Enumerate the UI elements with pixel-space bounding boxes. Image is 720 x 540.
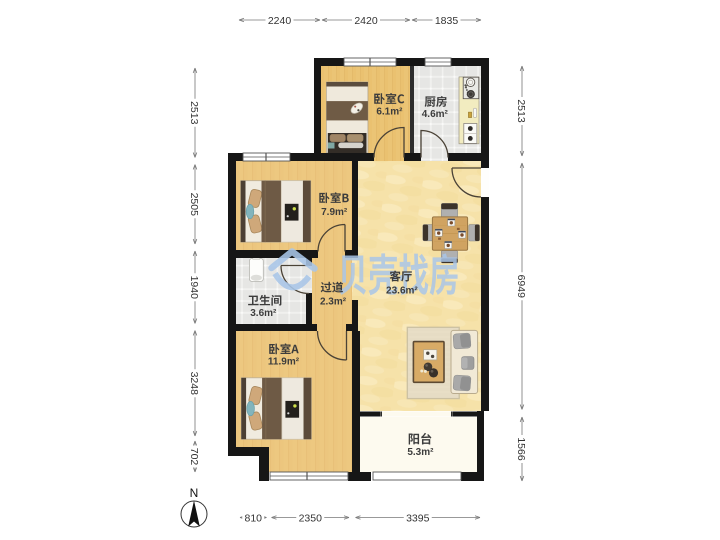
svg-text:N: N <box>190 486 199 500</box>
svg-text:1940: 1940 <box>188 276 200 300</box>
svg-text:2420: 2420 <box>354 15 378 27</box>
svg-text:2513: 2513 <box>515 99 527 123</box>
svg-text:7.9m²: 7.9m² <box>321 207 348 218</box>
svg-text:6.1m²: 6.1m² <box>376 107 403 118</box>
svg-text:23.6m²: 23.6m² <box>386 286 418 297</box>
svg-text:2505: 2505 <box>188 193 200 217</box>
svg-text:2240: 2240 <box>268 15 292 27</box>
svg-text:810: 810 <box>244 512 262 524</box>
svg-text:3.6m²: 3.6m² <box>250 308 277 319</box>
svg-text:2513: 2513 <box>188 101 200 125</box>
svg-text:6949: 6949 <box>515 275 527 299</box>
svg-text:1566: 1566 <box>515 437 527 461</box>
svg-text:2.3m²: 2.3m² <box>320 296 347 307</box>
svg-text:2350: 2350 <box>299 512 323 524</box>
svg-text:3395: 3395 <box>406 512 430 524</box>
svg-text:702: 702 <box>188 448 200 466</box>
svg-text:4.6m²: 4.6m² <box>422 109 449 120</box>
svg-text:11.9m²: 11.9m² <box>268 356 300 367</box>
svg-text:1835: 1835 <box>435 15 459 27</box>
svg-text:3248: 3248 <box>188 372 200 396</box>
svg-text:5.3m²: 5.3m² <box>407 447 434 458</box>
